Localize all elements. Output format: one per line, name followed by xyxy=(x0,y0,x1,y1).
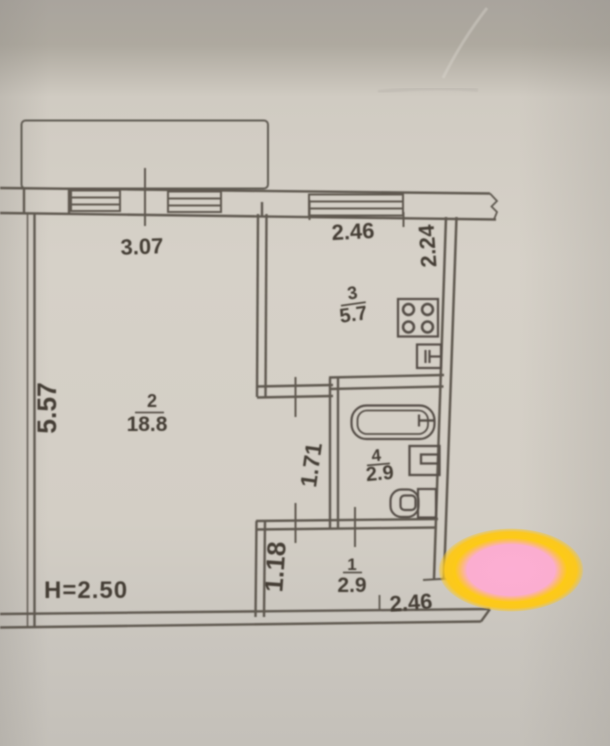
svg-text:18.8: 18.8 xyxy=(127,413,168,436)
svg-text:H=2.50: H=2.50 xyxy=(44,577,128,604)
svg-text:2.9: 2.9 xyxy=(365,462,395,486)
svg-text:3.07: 3.07 xyxy=(120,233,164,259)
svg-text:1.18: 1.18 xyxy=(258,541,291,594)
svg-text:1: 1 xyxy=(347,555,356,574)
svg-text:5.57: 5.57 xyxy=(32,382,62,434)
svg-text:2.24: 2.24 xyxy=(413,223,441,268)
svg-text:2.9: 2.9 xyxy=(337,574,366,597)
svg-text:2.46: 2.46 xyxy=(331,218,375,245)
svg-text:5.7: 5.7 xyxy=(338,302,369,328)
svg-text:2: 2 xyxy=(147,391,157,411)
svg-text:2.46: 2.46 xyxy=(389,589,433,617)
